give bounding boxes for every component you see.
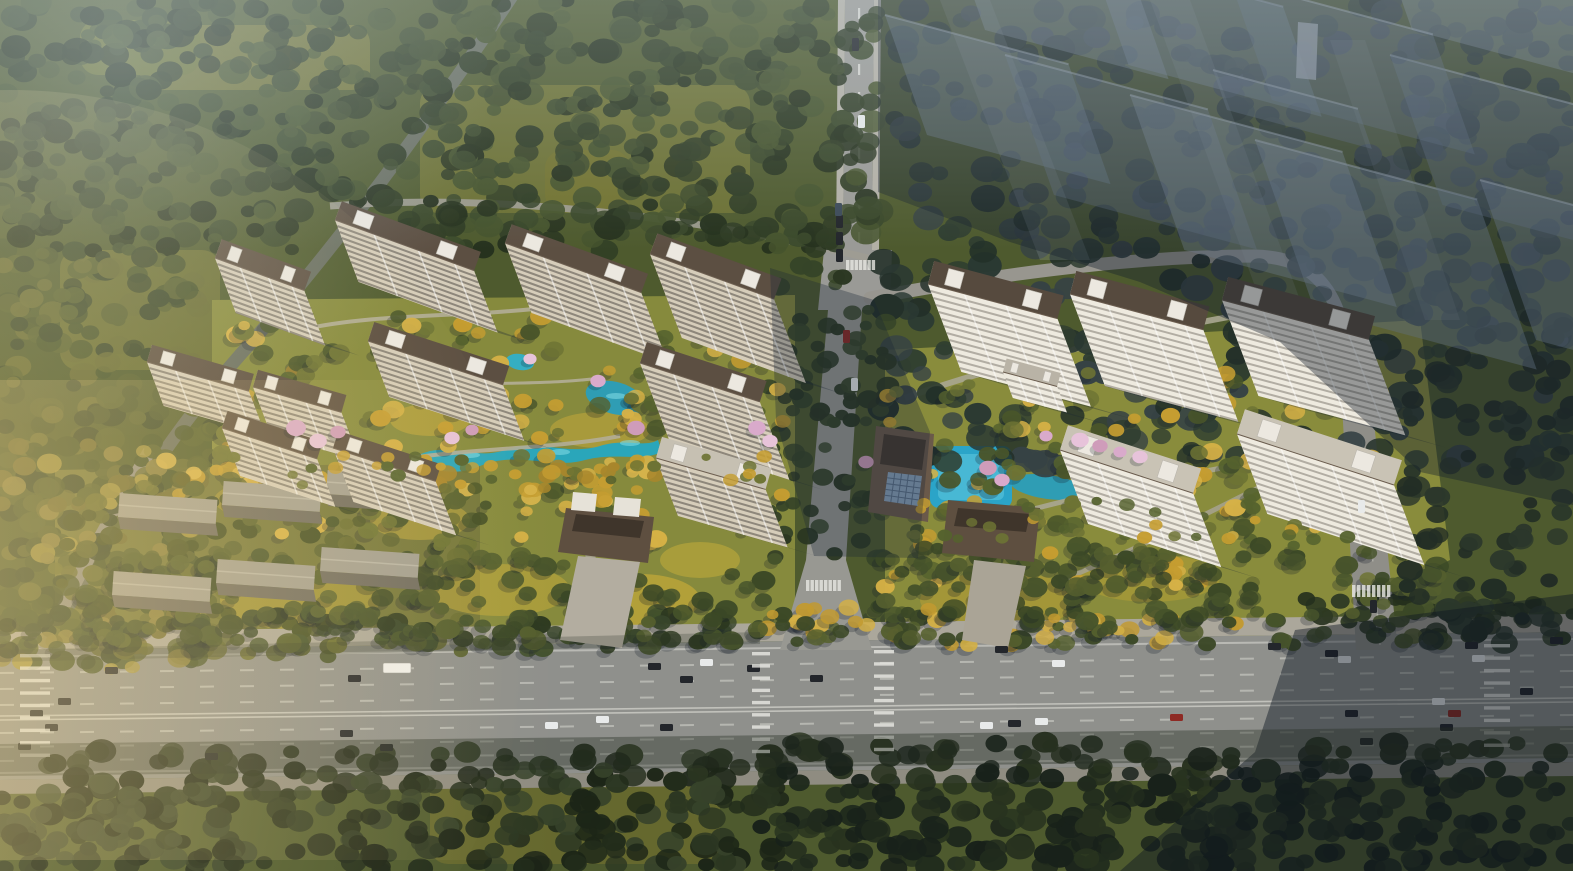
render-canvas (0, 0, 1573, 871)
aerial-architectural-rendering (0, 0, 1573, 871)
